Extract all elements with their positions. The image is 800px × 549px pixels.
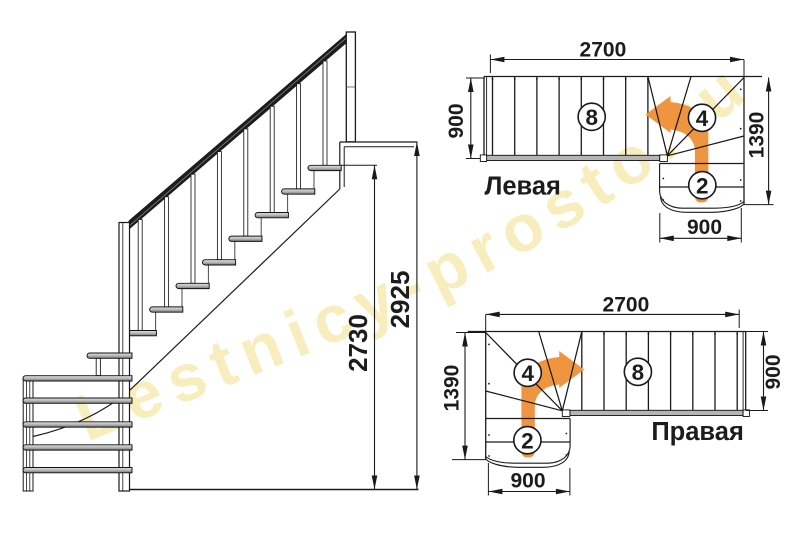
svg-text:1390: 1390 <box>745 112 768 159</box>
svg-text:2: 2 <box>521 428 534 453</box>
svg-text:900: 900 <box>445 103 468 138</box>
svg-text:Правая: Правая <box>651 418 744 446</box>
svg-text:2925: 2925 <box>385 271 415 329</box>
svg-text:Левая: Левая <box>484 172 560 200</box>
svg-text:900: 900 <box>510 470 545 493</box>
svg-text:8: 8 <box>585 105 598 130</box>
svg-text:1390: 1390 <box>440 365 463 412</box>
svg-text:2730: 2730 <box>343 314 373 372</box>
svg-text:2700: 2700 <box>603 293 650 316</box>
svg-text:900: 900 <box>762 354 785 389</box>
svg-text:8: 8 <box>632 360 645 385</box>
svg-text:900: 900 <box>687 216 722 239</box>
svg-text:4: 4 <box>521 361 534 386</box>
svg-text:2700: 2700 <box>580 38 627 61</box>
svg-text:2: 2 <box>696 173 709 198</box>
svg-text:4: 4 <box>696 106 709 131</box>
